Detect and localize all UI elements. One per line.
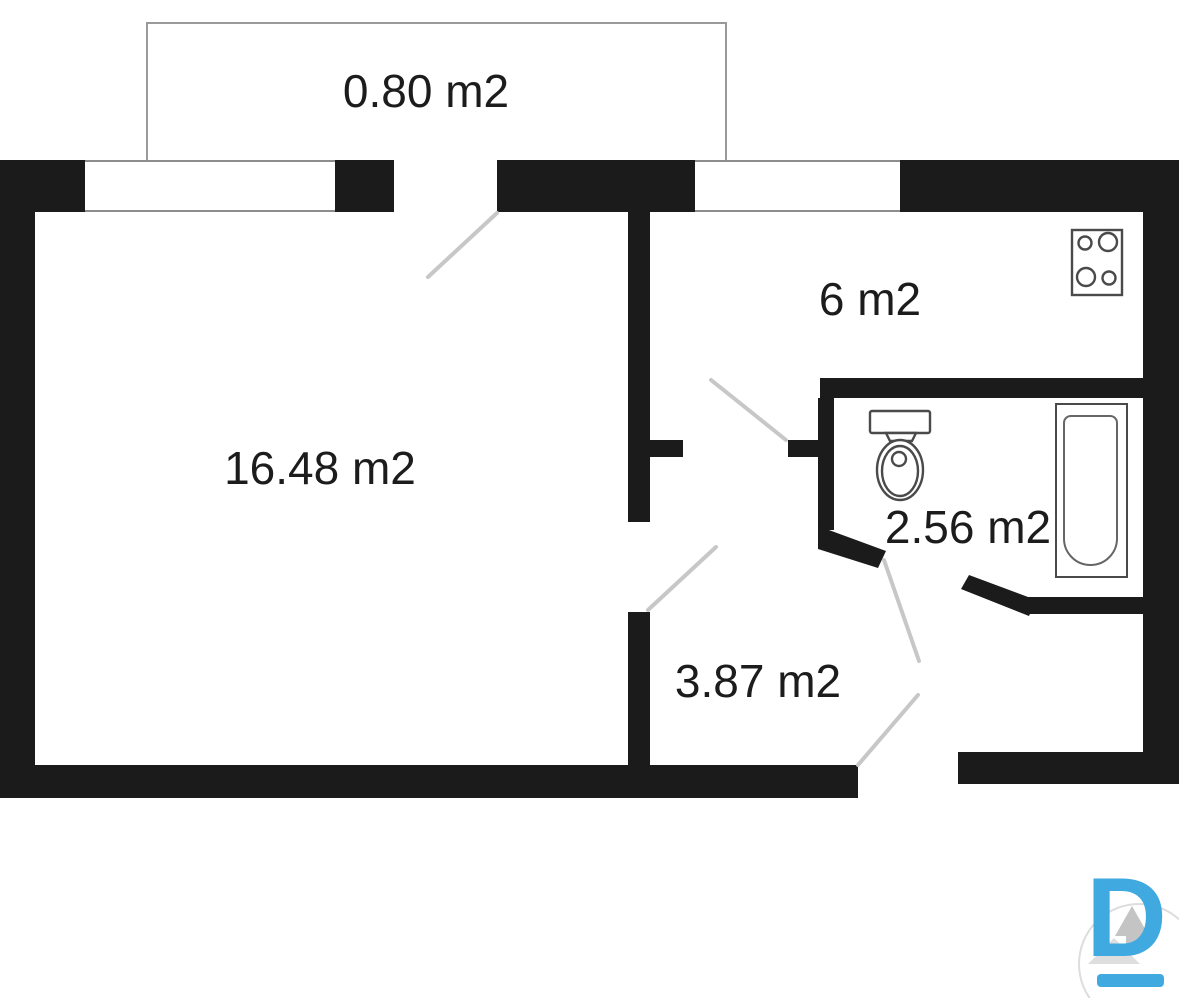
- kitchen-area-label: 6 m2: [780, 276, 960, 322]
- top-wall-segment: [335, 160, 394, 212]
- living-door-swing: [648, 547, 716, 610]
- bathroom-area-label: 2.56 m2: [858, 504, 1078, 550]
- bathroom-left-wall: [818, 398, 834, 530]
- right-wall: [1143, 160, 1179, 784]
- logo-letter: D: [1086, 872, 1167, 964]
- balcony-door-swing: [428, 213, 497, 277]
- bathroom-top-wall: [820, 378, 1143, 398]
- divider-wall-upper: [628, 212, 650, 522]
- top-wall-segment: [497, 160, 695, 212]
- stove-icon: [1072, 230, 1122, 295]
- kitchen-door-jamb-left: [648, 440, 683, 457]
- floor-plan: 0.80 m2 16.48 m2 6 m2 2.56 m2 3.87 m2 D: [0, 0, 1179, 998]
- divider-wall-lower: [628, 612, 650, 765]
- top-wall-segment: [900, 160, 1179, 212]
- living-area-label: 16.48 m2: [190, 445, 450, 491]
- kitchen-door-swing: [711, 380, 786, 440]
- balcony-area-label: 0.80 m2: [296, 68, 556, 114]
- logo-underline: [1097, 974, 1164, 987]
- bathroom-bottom-wall: [1027, 597, 1143, 614]
- left-wall: [0, 160, 35, 798]
- bottom-wall-left: [0, 765, 858, 798]
- hallway-area-label: 3.87 m2: [648, 658, 868, 704]
- balcony-door-opening: [394, 160, 497, 212]
- toilet-icon: [870, 411, 930, 500]
- window: [85, 160, 335, 212]
- entrance-door-swing: [858, 695, 918, 765]
- kitchen-door-jamb-right: [788, 440, 820, 457]
- window: [695, 160, 900, 212]
- bathroom-door-swing: [884, 560, 919, 661]
